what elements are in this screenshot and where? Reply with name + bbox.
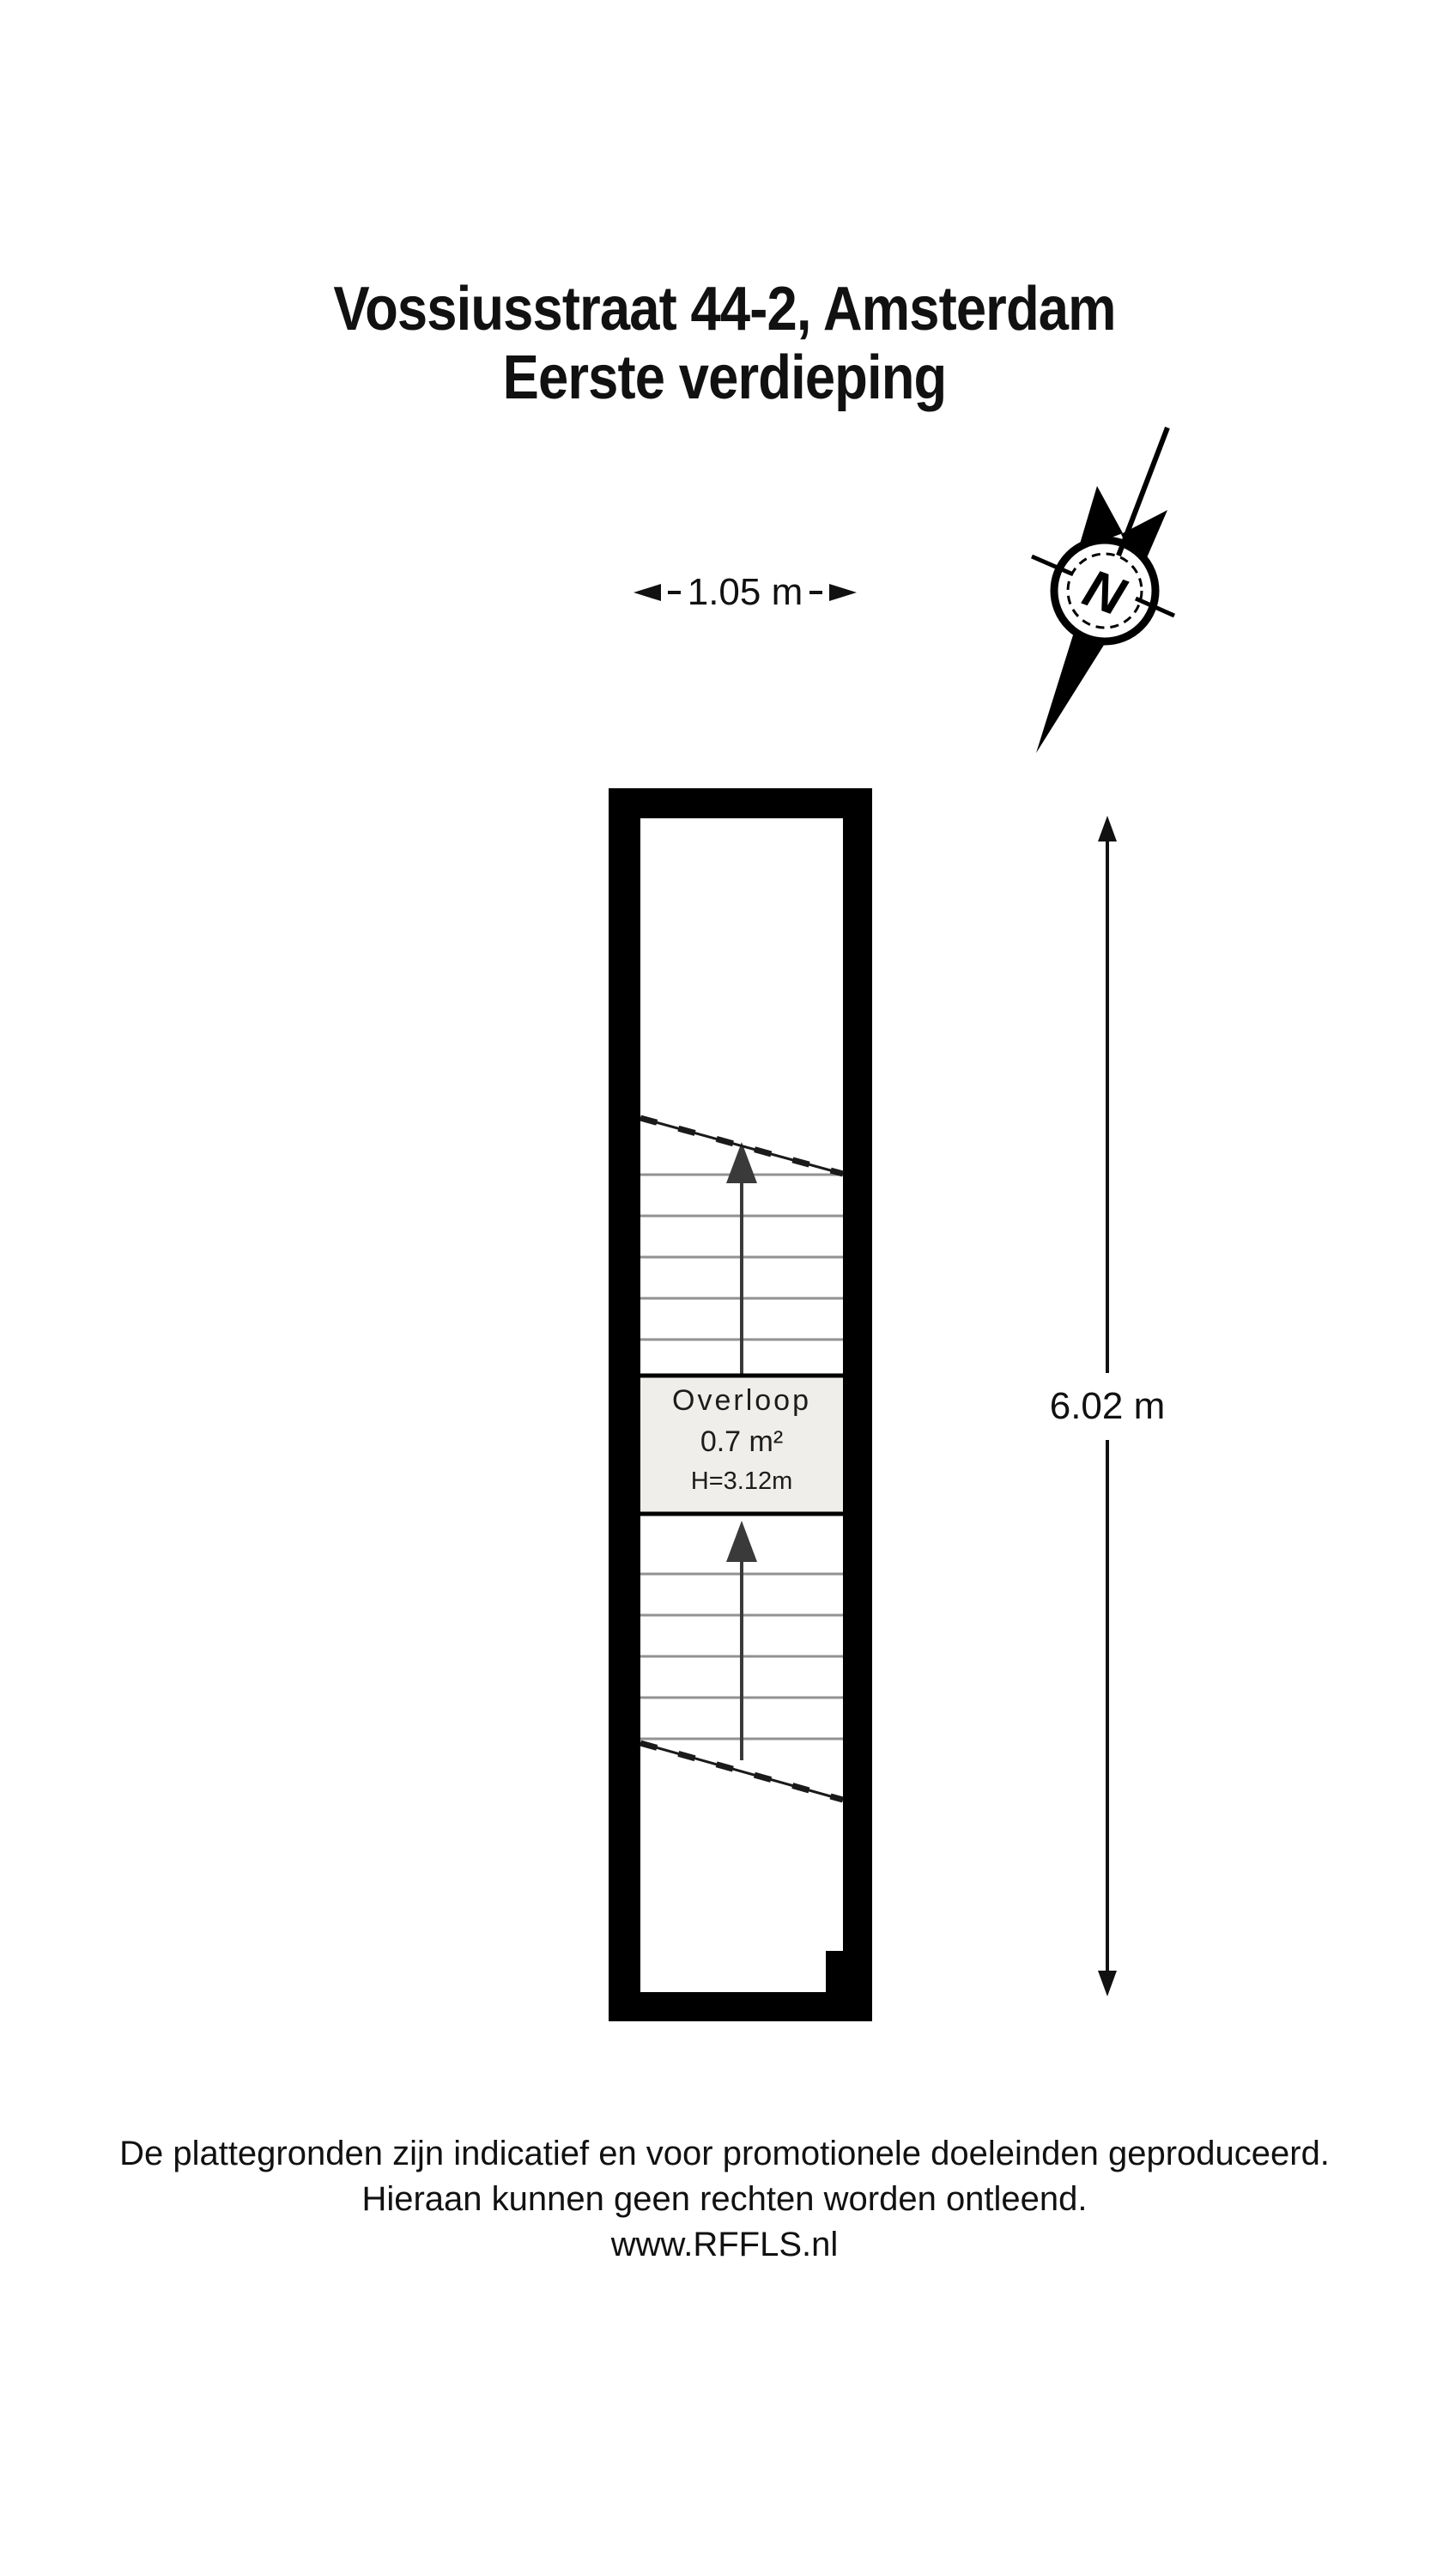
- title-floor: Eerste verdieping: [87, 343, 1361, 412]
- room-area: 0.7 m²: [640, 1421, 843, 1462]
- website-url: www.RFFLS.nl: [0, 2222, 1449, 2268]
- width-dimension: 1.05 m: [634, 570, 857, 615]
- wall-left: [609, 788, 640, 2021]
- width-dimension-label: 1.05 m: [688, 571, 803, 614]
- disclaimer-line-2: Hieraan kunnen geen rechten worden ontle…: [0, 2177, 1449, 2222]
- wall-top: [609, 788, 872, 818]
- room-label: Overloop 0.7 m² H=3.12m: [640, 1380, 843, 1500]
- arrow-down-icon: [1098, 1971, 1117, 1996]
- height-dimension-label: 6.02 m: [1039, 1373, 1176, 1440]
- floorplan-page: Vossiusstraat 44-2, Amsterdam Eerste ver…: [0, 0, 1449, 2576]
- up-arrow-head-icon: [726, 1521, 757, 1562]
- dimension-line-right: [809, 591, 822, 594]
- wall-notch: [826, 1951, 845, 1994]
- wall-right: [843, 788, 872, 2021]
- stairs-lower-flight: [640, 1521, 843, 1800]
- dimension-line-left: [668, 591, 681, 594]
- arrow-left-icon: [634, 584, 661, 601]
- footer-disclaimer: De plattegronden zijn indicatief en voor…: [0, 2131, 1449, 2268]
- stairs-upper-flight: [640, 1118, 843, 1376]
- height-dimension: 6.02 m: [1039, 816, 1176, 1996]
- title-address: Vossiusstraat 44-2, Amsterdam: [87, 275, 1361, 343]
- arrow-right-icon: [829, 584, 857, 601]
- disclaimer-line-1: De plattegronden zijn indicatief en voor…: [0, 2131, 1449, 2177]
- page-title: Vossiusstraat 44-2, Amsterdam Eerste ver…: [87, 275, 1361, 412]
- room-name: Overloop: [640, 1380, 843, 1421]
- compass-rose-icon: N: [987, 404, 1228, 773]
- room-ceiling-height: H=3.12m: [640, 1462, 843, 1500]
- wall-bottom: [609, 1992, 872, 2021]
